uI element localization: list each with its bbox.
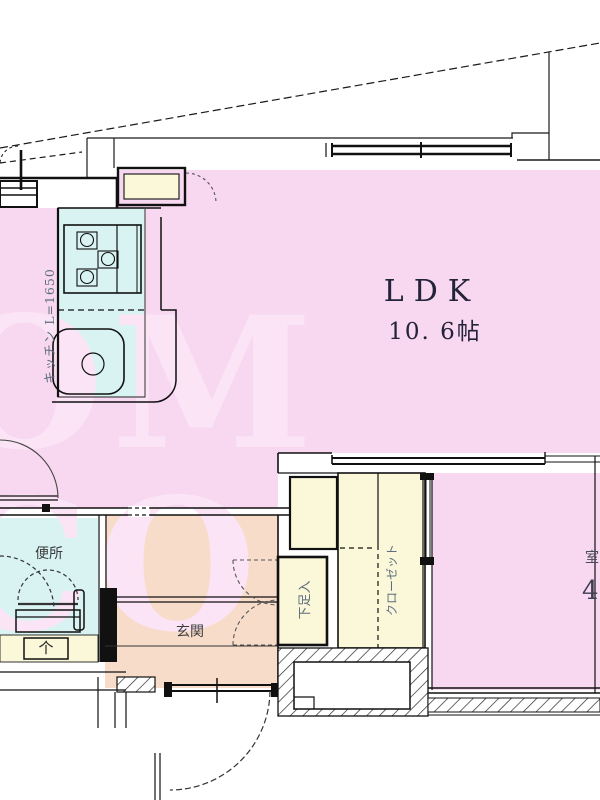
label-ldk: LDK: [352, 274, 512, 309]
stove: [64, 225, 141, 293]
meter-box-symbol: 个: [24, 637, 68, 659]
hatched-walls: [117, 648, 600, 716]
storage-box: [290, 477, 337, 549]
bedroom-walls: [420, 456, 600, 693]
stove-burners: [77, 232, 118, 286]
toilet-fixture: [0, 556, 84, 632]
window-top: [326, 142, 511, 158]
sink-drain: [82, 353, 104, 375]
label-toilet: 便所: [20, 543, 78, 563]
door-swing-arc: [0, 440, 58, 498]
cupboard: [118, 168, 216, 205]
label-entrance: 玄関: [158, 621, 222, 641]
plan-linework: [0, 0, 600, 800]
closet: [338, 473, 425, 648]
front-door-swing-arc: [170, 691, 270, 790]
meter-box-recess: [294, 662, 410, 709]
entrance-hall: [105, 515, 278, 703]
label-ldk-size: 10. 6帖: [355, 312, 515, 346]
label-bedroom-fragment: 室: [585, 547, 599, 567]
front-door: [164, 682, 278, 790]
kitchen-unit: [52, 208, 176, 402]
label-closet: クローゼット: [383, 541, 399, 619]
ldk-west-door: [0, 440, 58, 512]
label-kitchen: キッチン L=1650: [39, 247, 55, 405]
label-shoe-cabinet: 下足入: [294, 556, 310, 644]
exterior-fixtures: [0, 146, 117, 208]
cupboard-door-arc: [186, 173, 216, 203]
sink: [53, 329, 124, 394]
wall-stub: [100, 588, 117, 662]
floor-plan: OM CO: [0, 0, 600, 800]
ldk-bedroom-partition: [278, 452, 600, 473]
label-bedroom-size-fragment: 4: [582, 576, 599, 606]
